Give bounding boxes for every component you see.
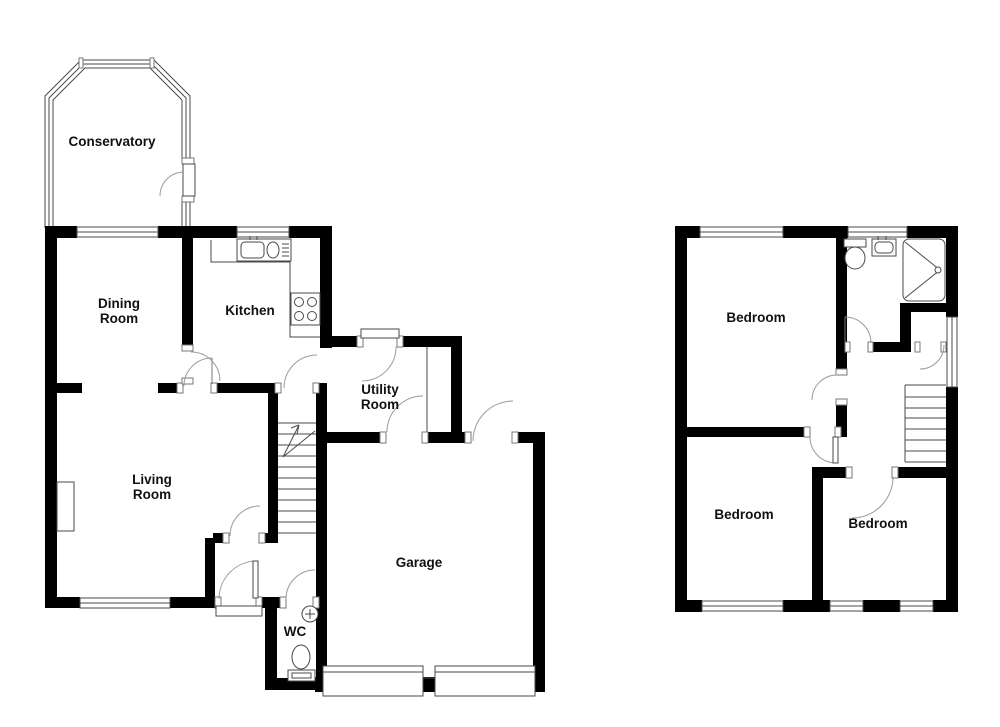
front-door-step	[216, 606, 262, 616]
utility-room-door	[362, 347, 396, 381]
landing-window	[947, 317, 957, 387]
wc-fixtures	[288, 606, 318, 681]
ground-floor-door-jambs	[177, 336, 518, 608]
kitchen-hob	[291, 293, 320, 325]
room-label-bedroom-3: Bedroom	[848, 516, 907, 531]
toilet-cistern	[844, 239, 866, 247]
kitchen-window	[237, 227, 289, 237]
front-door	[219, 561, 257, 599]
kitchen-door	[191, 352, 220, 381]
room-label-wc: WC	[284, 624, 307, 639]
bedroom3-window-left	[830, 601, 863, 611]
bedroom1-door	[812, 375, 837, 400]
cupboard-door	[920, 345, 944, 369]
fireplace	[57, 482, 74, 531]
staircase-down	[905, 385, 946, 462]
living-room-window	[80, 598, 170, 608]
wc-toilet	[292, 645, 310, 669]
dining-window	[77, 227, 158, 237]
bedroom1-window	[700, 227, 783, 237]
room-label-kitchen: Kitchen	[225, 303, 275, 318]
room-label-living-room: Living Room	[124, 472, 180, 502]
ground-floor-plan	[45, 58, 545, 696]
floorplan-drawing	[0, 0, 1000, 727]
room-label-utility-room: Utility Room	[352, 382, 408, 412]
stairs-direction-arrow	[283, 425, 315, 457]
shower-cubicle	[903, 239, 945, 301]
bedroom3-window-right	[900, 601, 933, 611]
kitchen-sink	[237, 236, 291, 261]
bedroom2-window	[702, 601, 783, 611]
floorplan-page: Conservatory Dining Room Kitchen Utility…	[0, 0, 1000, 727]
conservatory-door	[160, 158, 195, 202]
staircase-up	[278, 423, 316, 533]
bathroom-door	[845, 317, 871, 343]
hall-kitchen-door	[284, 355, 317, 388]
garage-door	[323, 666, 423, 696]
room-label-bedroom-1: Bedroom	[726, 310, 785, 325]
garage-door	[435, 666, 535, 696]
wc-door	[286, 570, 315, 599]
utility-door-threshold	[361, 329, 399, 338]
bedroom2-door	[810, 437, 836, 463]
first-floor-plan	[675, 226, 958, 612]
living-room-door	[230, 506, 260, 536]
bathroom-window	[848, 227, 907, 237]
garage-side-door	[473, 401, 513, 441]
room-label-garage: Garage	[396, 555, 443, 570]
first-floor-door-jambs	[804, 342, 946, 478]
bathroom-toilet	[845, 247, 865, 269]
bathroom-fixtures	[844, 236, 945, 301]
room-label-bedroom-2: Bedroom	[714, 507, 773, 522]
room-label-dining-room: Dining Room	[91, 296, 147, 326]
bedroom3-door	[852, 477, 893, 518]
room-label-conservatory: Conservatory	[68, 134, 155, 149]
